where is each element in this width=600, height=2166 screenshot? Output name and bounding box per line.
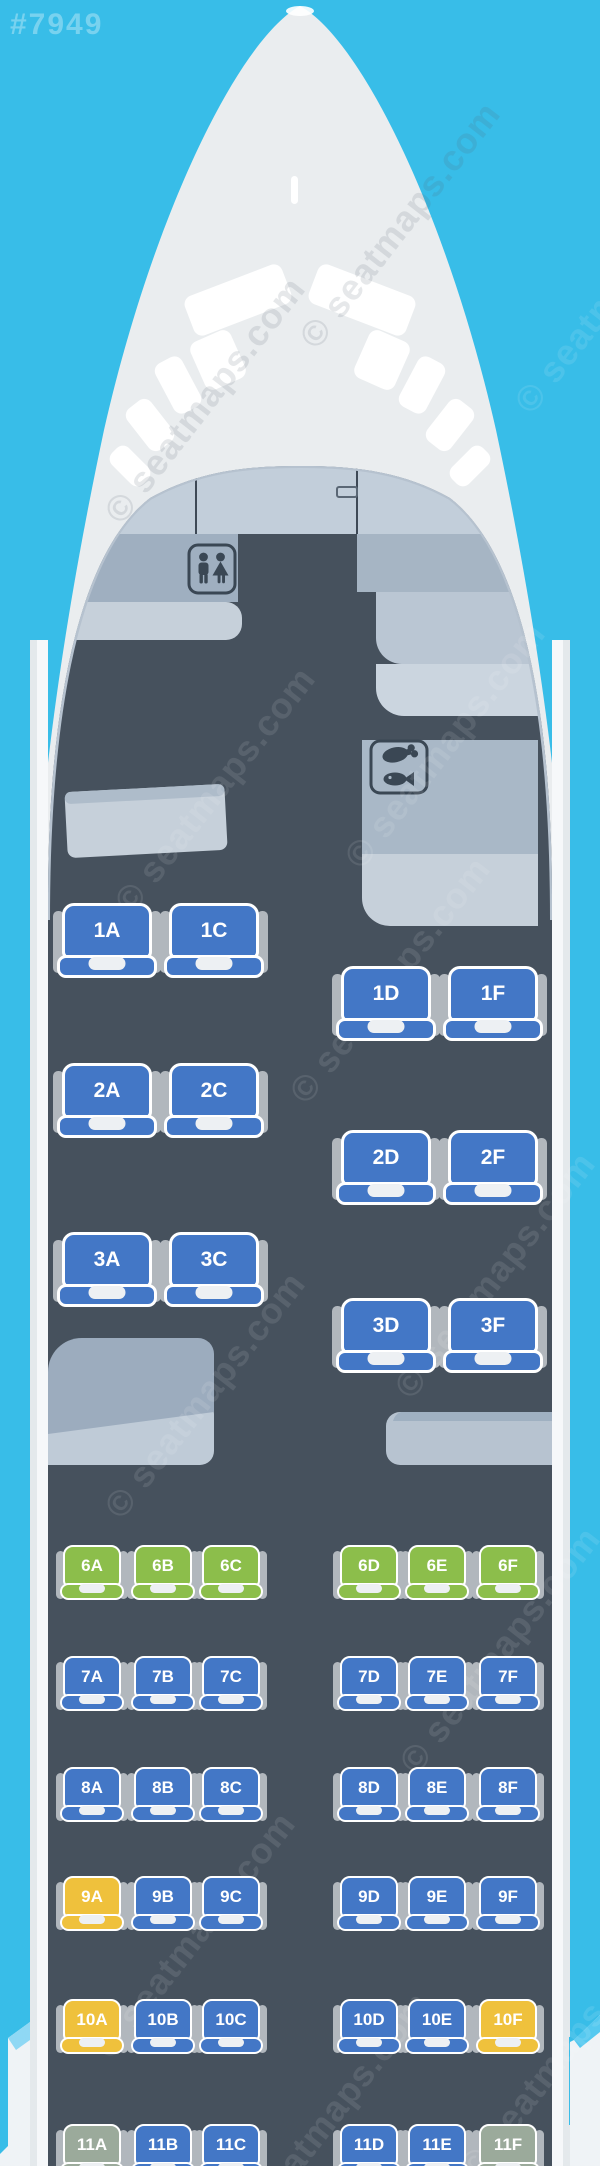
seat-cushion [57,1115,157,1138]
seat-tray [196,957,233,970]
seat-label: 6D [340,1545,398,1587]
seat-9E[interactable]: 9E [408,1876,466,1936]
seat-tray [495,1695,521,1704]
seat-label: 10C [202,1999,260,2041]
seat-10A[interactable]: 10A [63,1999,121,2059]
seat-cushion [60,1914,124,1931]
seat-6E[interactable]: 6E [408,1545,466,1605]
map-id-watermark: #7949 [10,8,103,42]
seat-7D[interactable]: 7D [340,1656,398,1716]
seat-label: 8D [340,1767,398,1809]
seat-tray [424,1806,450,1815]
seat-cushion [60,1694,124,1711]
seat-tray [218,1695,244,1704]
seat-tray [356,1695,382,1704]
seat-8C[interactable]: 8C [202,1767,260,1827]
seat-tray [79,2038,105,2047]
seat-label: 1C [169,903,259,959]
seat-cushion [164,1115,264,1138]
seat-label: 6E [408,1545,466,1587]
seat-label: 11E [408,2124,466,2166]
seat-label: 8C [202,1767,260,1809]
seat-label: 1A [62,903,152,959]
seat-11E[interactable]: 11E [408,2124,466,2166]
seat-tray [356,1806,382,1815]
seat-cushion [164,955,264,978]
seat-tray [356,1915,382,1924]
seat-cushion [336,1018,436,1041]
seat-label: 11C [202,2124,260,2166]
seat-label: 10B [134,1999,192,2041]
seat-6D[interactable]: 6D [340,1545,398,1605]
seat-cushion [57,955,157,978]
seat-label: 6F [479,1545,537,1587]
seat-10B[interactable]: 10B [134,1999,192,2059]
seat-7A[interactable]: 7A [63,1656,121,1716]
seat-label: 2D [341,1130,431,1186]
seat-tray [79,1584,105,1593]
seat-tray [150,2038,176,2047]
seat-cushion [131,1914,195,1931]
seat-label: 11F [479,2124,537,2166]
seat-tray [424,1695,450,1704]
seat-3A[interactable]: 3A [62,1232,152,1310]
seat-label: 6A [63,1545,121,1587]
seat-label: 7A [63,1656,121,1698]
seat-cushion [405,1805,469,1822]
seat-label: 7C [202,1656,260,1698]
seat-label: 8B [134,1767,192,1809]
seat-11A[interactable]: 11A [63,2124,121,2166]
seat-cushion [199,2037,263,2054]
seat-label: 7F [479,1656,537,1698]
seat-tray [150,1806,176,1815]
seat-tray [475,1184,512,1197]
seat-label: 6C [202,1545,260,1587]
seat-tray [218,1584,244,1593]
seat-label: 7E [408,1656,466,1698]
seat-11B[interactable]: 11B [134,2124,192,2166]
seat-label: 7D [340,1656,398,1698]
seat-10F[interactable]: 10F [479,1999,537,2059]
seat-cushion [131,2162,195,2166]
seat-1C[interactable]: 1C [169,903,259,981]
seat-label: 10A [63,1999,121,2041]
seat-tray [218,1806,244,1815]
seat-cushion [131,1694,195,1711]
seat-label: 2A [62,1063,152,1119]
seat-8D[interactable]: 8D [340,1767,398,1827]
seat-3F[interactable]: 3F [448,1298,538,1376]
seat-3C[interactable]: 3C [169,1232,259,1310]
seat-tray [196,1286,233,1299]
seat-9F[interactable]: 9F [479,1876,537,1936]
seat-cushion [57,1284,157,1307]
seat-tray [218,2038,244,2047]
seat-cushion [199,1583,263,1600]
seat-cushion [60,1805,124,1822]
seat-tray [218,1915,244,1924]
seat-6B[interactable]: 6B [134,1545,192,1605]
seat-label: 10D [340,1999,398,2041]
seat-label: 11A [63,2124,121,2166]
seat-tray [495,1806,521,1815]
seat-label: 2F [448,1130,538,1186]
seat-cushion [337,1914,401,1931]
seat-label: 1F [448,966,538,1022]
seat-cushion [336,1182,436,1205]
seat-label: 10F [479,1999,537,2041]
seat-10D[interactable]: 10D [340,1999,398,2059]
seat-tray [368,1020,405,1033]
seat-cushion [337,1694,401,1711]
seat-label: 9E [408,1876,466,1918]
seat-label: 3F [448,1298,538,1354]
seat-label: 8A [63,1767,121,1809]
seat-11C[interactable]: 11C [202,2124,260,2166]
seat-tray [89,1286,126,1299]
seat-tray [150,1915,176,1924]
seat-label: 7B [134,1656,192,1698]
seat-7C[interactable]: 7C [202,1656,260,1716]
seat-7B[interactable]: 7B [134,1656,192,1716]
seat-tray [495,1584,521,1593]
seat-6A[interactable]: 6A [63,1545,121,1605]
seat-cushion [476,1694,540,1711]
seat-label: 11D [340,2124,398,2166]
seat-tray [89,957,126,970]
seat-tray [356,1584,382,1593]
seat-label: 3D [341,1298,431,1354]
seat-tray [196,1117,233,1130]
seat-label: 1D [341,966,431,1022]
seat-cushion [131,2037,195,2054]
seat-tray [424,1915,450,1924]
seat-tray [475,1020,512,1033]
seat-label: 9A [63,1876,121,1918]
seat-cushion [131,1805,195,1822]
seat-6C[interactable]: 6C [202,1545,260,1605]
seat-10C[interactable]: 10C [202,1999,260,2059]
seat-cushion [476,2162,540,2166]
seat-tray [79,1915,105,1924]
seat-tray [368,1352,405,1365]
seat-2A[interactable]: 2A [62,1063,152,1141]
seat-cushion [405,1583,469,1600]
seat-1F[interactable]: 1F [448,966,538,1044]
seat-label: 2C [169,1063,259,1119]
seat-6F[interactable]: 6F [479,1545,537,1605]
seat-9D[interactable]: 9D [340,1876,398,1936]
seat-cushion [131,1583,195,1600]
seat-cushion [199,1805,263,1822]
seat-cushion [405,1694,469,1711]
seat-label: 11B [134,2124,192,2166]
seat-11D[interactable]: 11D [340,2124,398,2166]
seat-cushion [443,1018,543,1041]
seat-cushion [476,1805,540,1822]
seat-3D[interactable]: 3D [341,1298,431,1376]
seat-tray [150,1695,176,1704]
seat-cushion [337,2037,401,2054]
seat-cushion [337,1805,401,1822]
seat-cushion [443,1350,543,1373]
seat-tray [495,2038,521,2047]
seat-cushion [476,2037,540,2054]
seat-tray [356,2038,382,2047]
seat-tray [424,1584,450,1593]
seat-9B[interactable]: 9B [134,1876,192,1936]
seat-2F[interactable]: 2F [448,1130,538,1208]
seat-tray [424,2038,450,2047]
seat-cushion [476,1583,540,1600]
seat-tray [495,1915,521,1924]
seat-label: 8E [408,1767,466,1809]
seat-tray [89,1117,126,1130]
seat-8E[interactable]: 8E [408,1767,466,1827]
seat-8B[interactable]: 8B [134,1767,192,1827]
seat-cushion [476,1914,540,1931]
seat-label: 9D [340,1876,398,1918]
seat-10E[interactable]: 10E [408,1999,466,2059]
seat-cushion [336,1350,436,1373]
seat-label: 9C [202,1876,260,1918]
seat-label: 9B [134,1876,192,1918]
seat-cushion [60,2162,124,2166]
seat-8F[interactable]: 8F [479,1767,537,1827]
seat-cushion [443,1182,543,1205]
seat-tray [150,1584,176,1593]
seat-1D[interactable]: 1D [341,966,431,1044]
seat-cushion [337,1583,401,1600]
seat-cushion [60,1583,124,1600]
seat-cushion [199,1914,263,1931]
seat-7E[interactable]: 7E [408,1656,466,1716]
seat-rows: 1A1C1D1F2A2C2D2F3A3C3D3F6A6B6C6D6E6F7A7B… [0,0,600,2166]
seat-cushion [405,2162,469,2166]
seat-cushion [405,2037,469,2054]
seat-9A[interactable]: 9A [63,1876,121,1936]
seat-label: 10E [408,1999,466,2041]
seat-cushion [199,2162,263,2166]
seat-cushion [164,1284,264,1307]
seat-label: 9F [479,1876,537,1918]
seat-cushion [199,1694,263,1711]
seat-tray [368,1184,405,1197]
seat-cushion [60,2037,124,2054]
seat-cushion [405,1914,469,1931]
seat-11F[interactable]: 11F [479,2124,537,2166]
seat-2D[interactable]: 2D [341,1130,431,1208]
seat-tray [79,1806,105,1815]
seat-1A[interactable]: 1A [62,903,152,981]
seat-7F[interactable]: 7F [479,1656,537,1716]
seat-cushion [337,2162,401,2166]
seat-map-page: 1A1C1D1F2A2C2D2F3A3C3D3F6A6B6C6D6E6F7A7B… [0,0,600,2166]
seat-tray [79,1695,105,1704]
seat-label: 3A [62,1232,152,1288]
seat-label: 3C [169,1232,259,1288]
seat-8A[interactable]: 8A [63,1767,121,1827]
seat-9C[interactable]: 9C [202,1876,260,1936]
seat-label: 6B [134,1545,192,1587]
seat-tray [475,1352,512,1365]
seat-2C[interactable]: 2C [169,1063,259,1141]
seat-label: 8F [479,1767,537,1809]
